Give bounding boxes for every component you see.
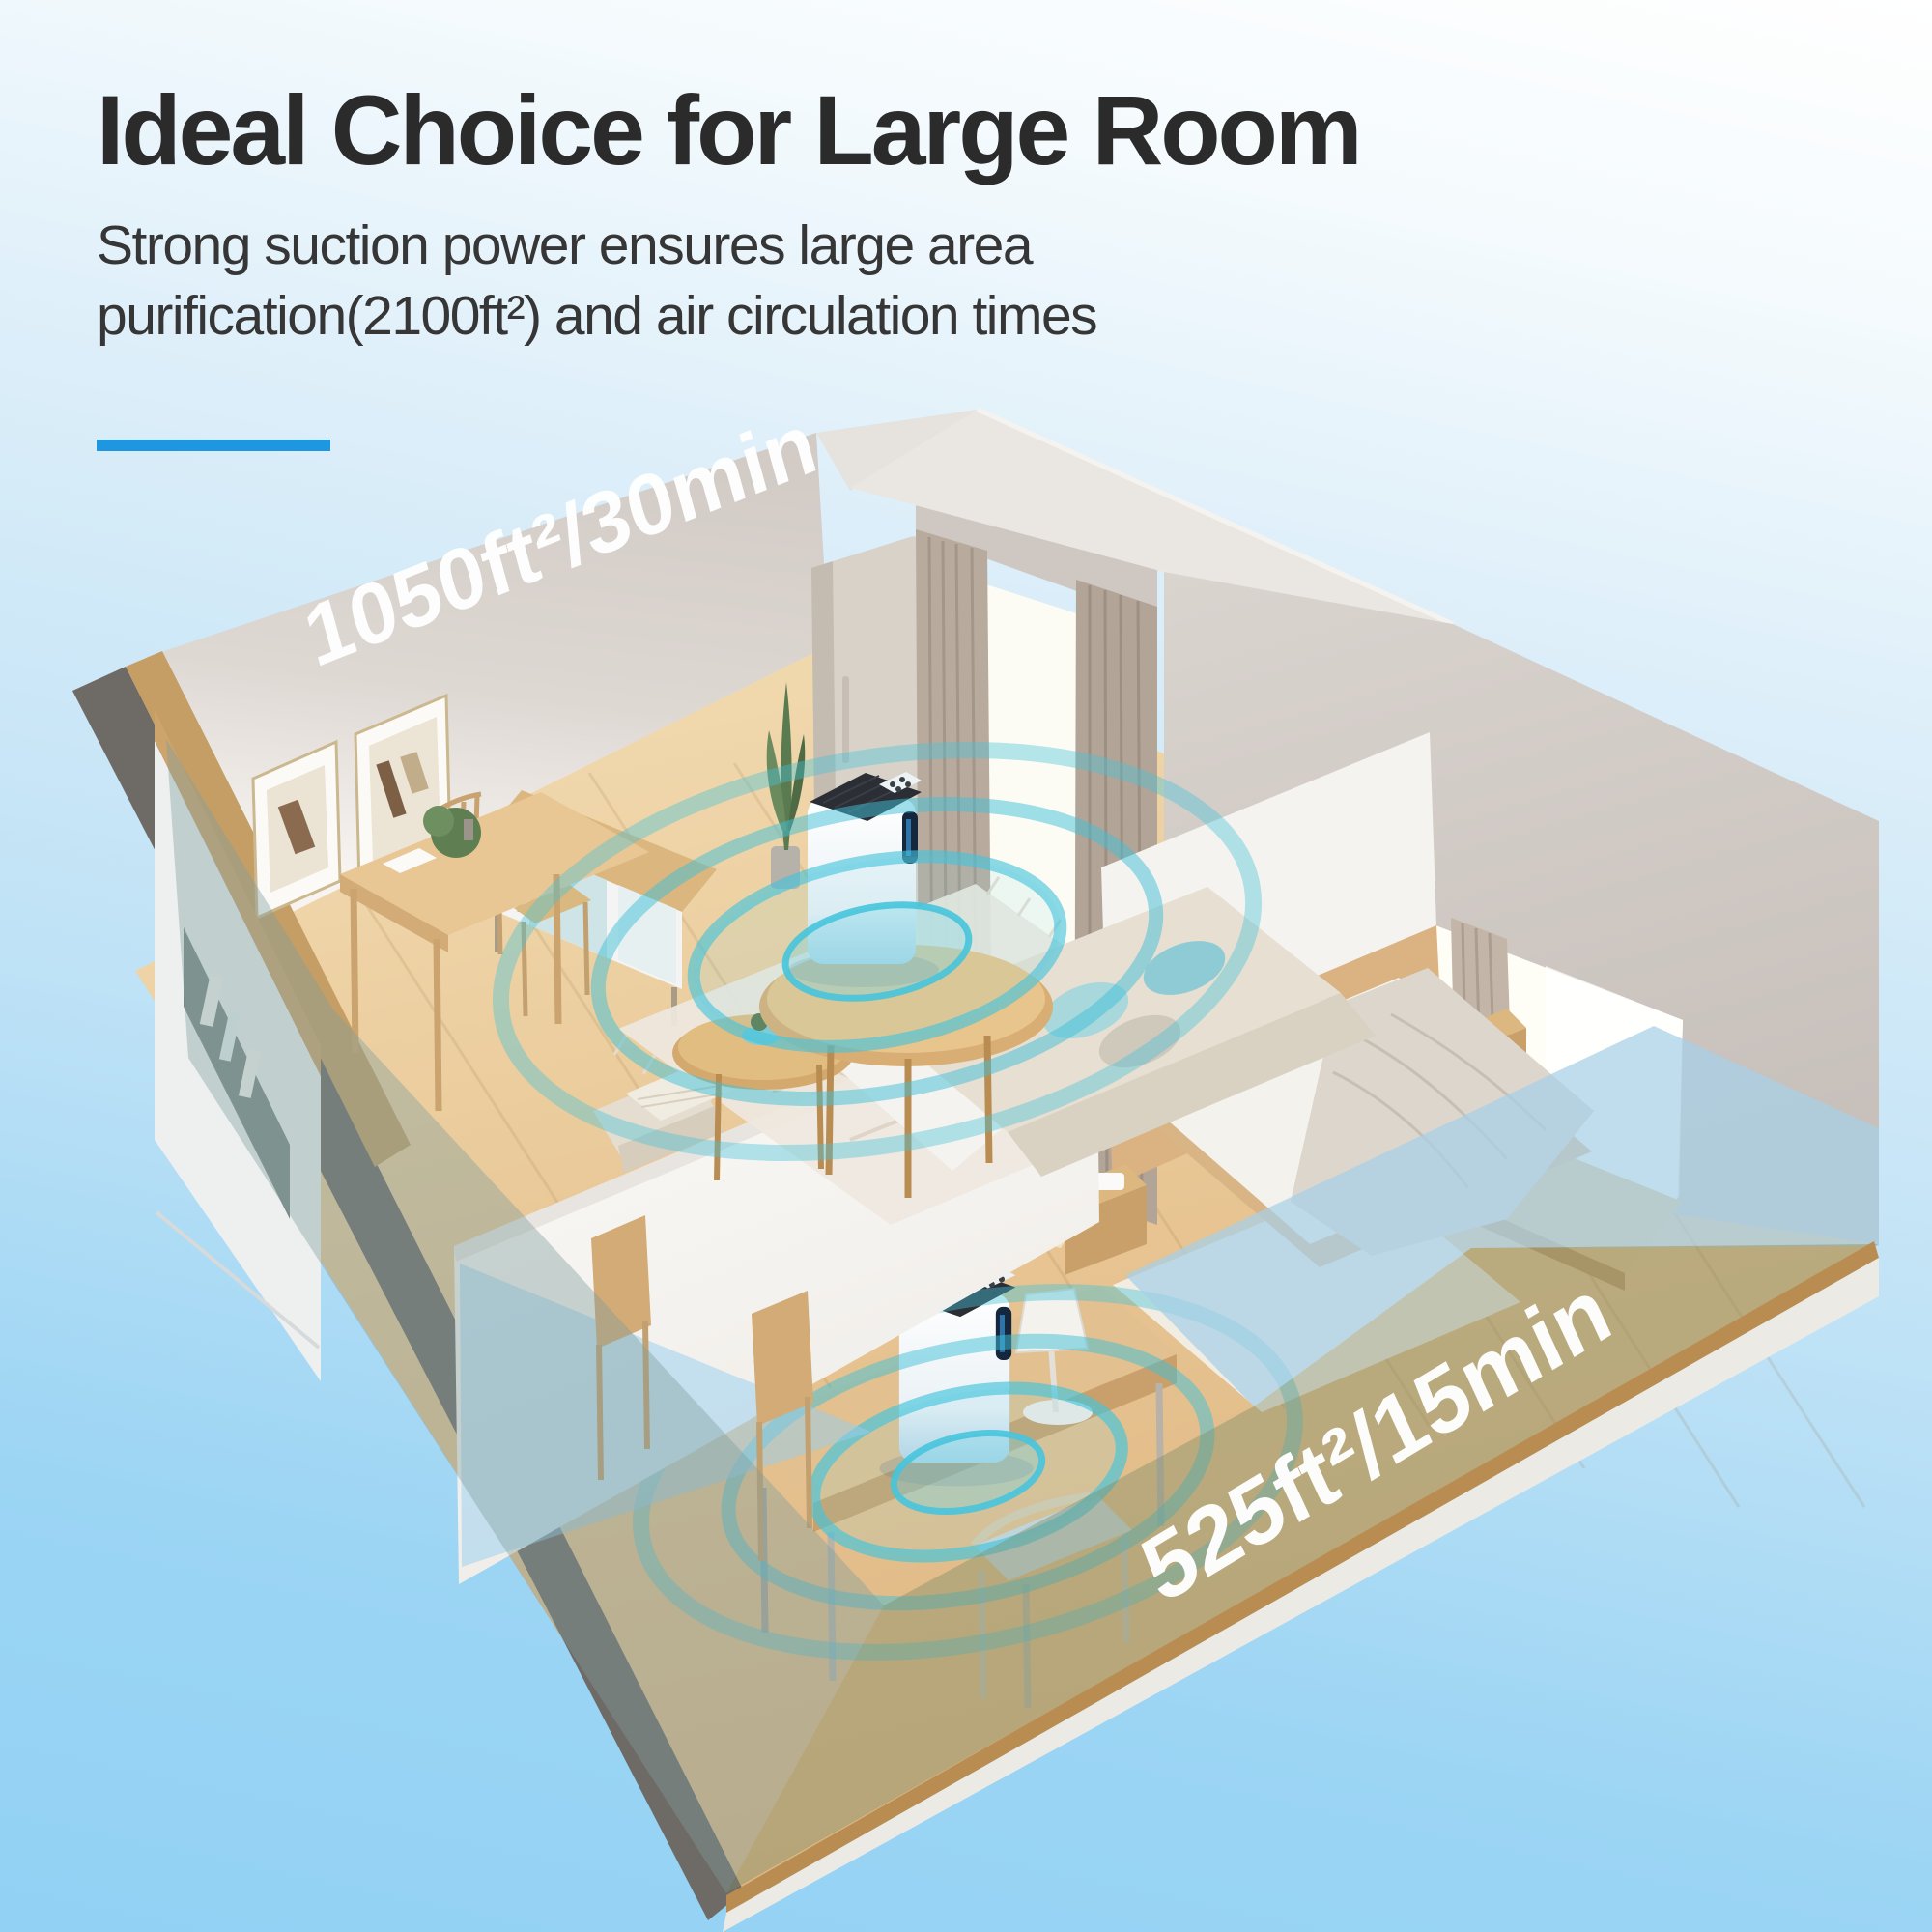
marketing-page: { "header": { "title": "Ideal Choice for… [0, 0, 1932, 1932]
apartment-illustration: 1050ft²/30min [0, 0, 1932, 1932]
